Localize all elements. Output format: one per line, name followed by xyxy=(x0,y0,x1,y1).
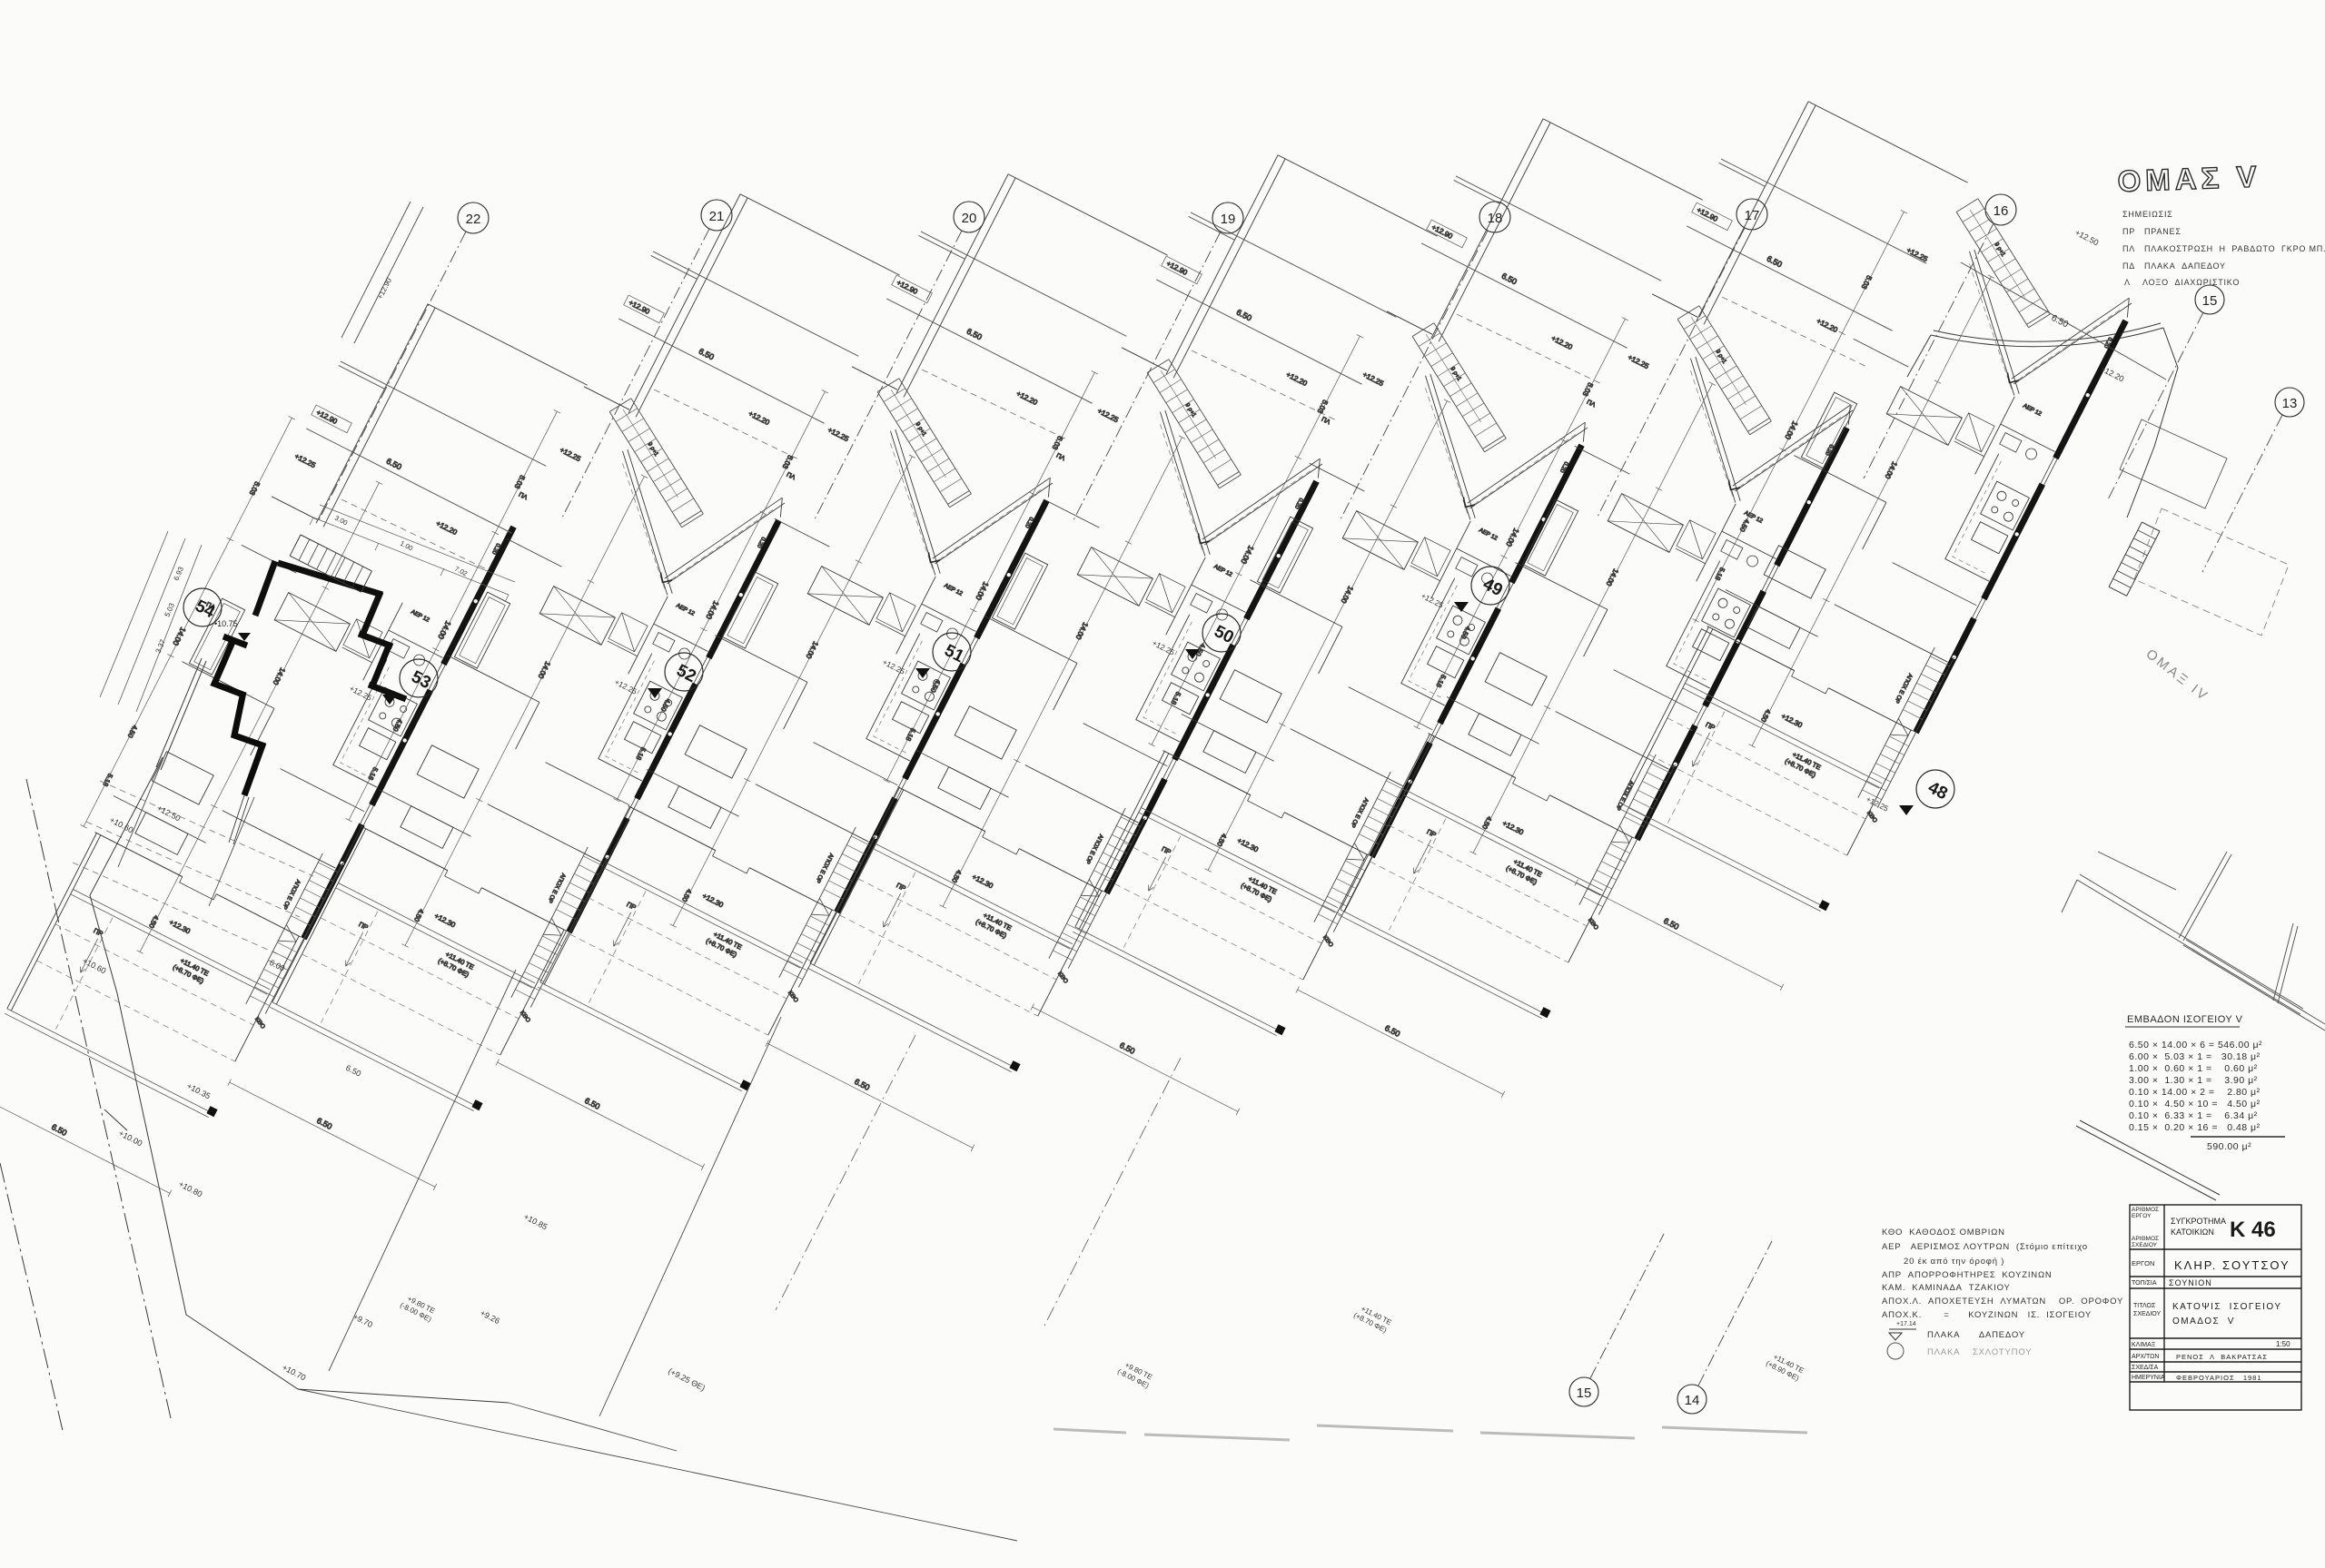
svg-text:19: 19 xyxy=(1221,212,1236,227)
svg-text:20 έκ από την όροφή ): 20 έκ από την όροφή ) xyxy=(1904,1257,2004,1267)
svg-text:ΦΕΒΡΟΥΑΡΙΟΣ 1981: ΦΕΒΡΟΥΑΡΙΟΣ 1981 xyxy=(2176,1374,2262,1382)
svg-text:0.10 × 4.50 × 10 = 4.50 μ²: 0.10 × 4.50 × 10 = 4.50 μ² xyxy=(2129,1099,2261,1109)
svg-text:ΑΡΧ/ΤΩΝ: ΑΡΧ/ΤΩΝ xyxy=(2132,1354,2159,1360)
svg-text:6.50 × 14.00 × 6 = 546.00 μ²: 6.50 × 14.00 × 6 = 546.00 μ² xyxy=(2129,1040,2262,1050)
svg-text:Λ ΛΟΞΟ ΔΙΑΧΩΡΙΣΤΙΚΟ: Λ ΛΟΞΟ ΔΙΑΧΩΡΙΣΤΙΚΟ xyxy=(2124,278,2240,287)
svg-text:ΑΡΙΘΜΟΣ: ΑΡΙΘΜΟΣ xyxy=(2132,1236,2159,1242)
svg-text:ΗΜΕΡΥΝΙΑ: ΗΜΕΡΥΝΙΑ xyxy=(2132,1375,2165,1381)
svg-text:ΑΠΟΧ.Κ. = ΚΟΥΖΙΝΩΝ: ΑΠΟΧ.Κ. = ΚΟΥΖΙΝΩΝ ΙΣ. ΙΣΟΓΕΙΟΥ xyxy=(1882,1310,2092,1320)
svg-text:•10.75: •10.75 xyxy=(214,619,238,628)
svg-text:+10.80: +10.80 xyxy=(177,1179,203,1199)
svg-text:0.10 × 14.00 × 2 = 2.80 μ²: 0.10 × 14.00 × 2 = 2.80 μ² xyxy=(2129,1087,2261,1098)
svg-text:ΚΘΟ ΚΑΘΟΔΟΣ ΟΜΒΡΙΩΝ: ΚΘΟ ΚΑΘΟΔΟΣ ΟΜΒΡΙΩΝ xyxy=(1882,1228,2005,1238)
svg-text:ΠΡ ΠΡΑΝΕΣ: ΠΡ ΠΡΑΝΕΣ xyxy=(2122,227,2182,236)
svg-text:6.50: 6.50 xyxy=(344,1063,362,1079)
svg-text:16: 16 xyxy=(1994,203,2009,219)
svg-text:15: 15 xyxy=(2202,293,2218,309)
svg-text:ΕΜΒΑΔΟΝ ΙΣΟΓΕΙΟΥ V: ΕΜΒΑΔΟΝ ΙΣΟΓΕΙΟΥ V xyxy=(2127,1014,2243,1025)
svg-text:ΣΧΕΔΙΟΥ: ΣΧΕΔΙΟΥ xyxy=(2132,1242,2158,1248)
svg-text:ΠΔ ΠΛΑΚΑ ΔΑΠΕΔΟΥ: ΠΔ ΠΛΑΚΑ ΔΑΠΕΔΟΥ xyxy=(2122,261,2226,271)
svg-text:14: 14 xyxy=(1685,1393,1700,1408)
svg-text:ΚΑΤΟΨΙΣ ΙΣΟΓΕΙΟΥ: ΚΑΤΟΨΙΣ ΙΣΟΓΕΙΟΥ xyxy=(2172,1302,2282,1312)
svg-text:3.00 × 1.30 × 1 = 3.90 μ²: 3.00 × 1.30 × 1 = 3.90 μ² xyxy=(2129,1075,2258,1086)
svg-text:ΣΗΜΕΙΩΣΙΣ: ΣΗΜΕΙΩΣΙΣ xyxy=(2122,210,2173,219)
svg-text:0.15 × 0.20 × 16 = 0.48 μ²: 0.15 × 0.20 × 16 = 0.48 μ² xyxy=(2129,1122,2261,1133)
svg-text:+17.14: +17.14 xyxy=(1896,1321,1916,1327)
svg-text:+9.26: +9.26 xyxy=(479,1308,501,1326)
svg-text:22: 22 xyxy=(466,212,481,227)
svg-text:ΕΡΓΟΥ: ΕΡΓΟΥ xyxy=(2132,1213,2152,1219)
svg-text:20: 20 xyxy=(962,211,977,226)
svg-text:3.37: 3.37 xyxy=(154,637,168,654)
svg-text:48: 48 xyxy=(1924,778,1950,804)
svg-text:ΤΟΠ/ΣΙΑ: ΤΟΠ/ΣΙΑ xyxy=(2132,1280,2157,1287)
svg-text:ΣΧΕΔΙΟΥ: ΣΧΕΔΙΟΥ xyxy=(2133,1311,2162,1317)
svg-text:13: 13 xyxy=(2282,396,2298,411)
svg-text:+12.25: +12.25 xyxy=(613,677,638,696)
svg-text:+12.25: +12.25 xyxy=(1420,591,1445,610)
svg-text:ΣΧΕΔ/ΣΑ: ΣΧΕΔ/ΣΑ xyxy=(2132,1365,2159,1371)
svg-text:+10.35: +10.35 xyxy=(185,1081,212,1101)
svg-text:(+9.25 ΘΕ): (+9.25 ΘΕ) xyxy=(667,1366,707,1393)
svg-text:ΑΕΡ ΑΕΡΙΣΜΟΣ ΛΟΥΤΡΩΝ (Στόμι: ΑΕΡ ΑΕΡΙΣΜΟΣ ΛΟΥΤΡΩΝ (Στόμιο επίτειχο xyxy=(1882,1242,2088,1252)
svg-text:ΣΥΓΚΡΟΤΗΜΑ: ΣΥΓΚΡΟΤΗΜΑ xyxy=(2171,1217,2226,1226)
svg-text:ΟΜΑΔΟΣ V: ΟΜΑΔΟΣ V xyxy=(2172,1317,2235,1326)
svg-text:ΑΠΡ ΑΠΟΡΡΟΦΗΤΗΡΕΣ ΚΟΥΖΙΝΩΝ: ΑΠΡ ΑΠΟΡΡΟΦΗΤΗΡΕΣ ΚΟΥΖΙΝΩΝ xyxy=(1882,1270,2053,1280)
svg-text:+10.70: +10.70 xyxy=(281,1363,307,1383)
svg-text:ΑΠΟΧ.Λ. ΑΠΟΧΕΤΕΥΣΗ ΛΥΜΑΤΩΝ: ΑΠΟΧ.Λ. ΑΠΟΧΕΤΕΥΣΗ ΛΥΜΑΤΩΝ ΟΡ. ΟΡΟΦΟΥ xyxy=(1882,1297,2123,1307)
svg-text:+12.50: +12.50 xyxy=(155,804,182,823)
svg-text:ΚΑΜ. ΚΑΜΙΝΑΔΑ ΤΖΑΚΙΟΥ: ΚΑΜ. ΚΑΜΙΝΑΔΑ ΤΖΑΚΙΟΥ xyxy=(1882,1283,2011,1293)
svg-text:+10.85: +10.85 xyxy=(522,1212,549,1232)
svg-text:ΤΙΤΛΟΣ: ΤΙΤΛΟΣ xyxy=(2133,1303,2156,1309)
svg-text:1.00 × 0.60 × 1 = 0.60 μ²: 1.00 × 0.60 × 1 = 0.60 μ² xyxy=(2129,1063,2258,1074)
svg-text:+12.50: +12.50 xyxy=(2073,228,2100,248)
svg-text:+10.60: +10.60 xyxy=(81,956,107,976)
svg-text:15: 15 xyxy=(1577,1386,1592,1401)
svg-text:ΠΛ ΠΛΑΚΟΣΤΡΩΣΗ Η ΡΑΒΔΩΤΟ: ΠΛ ΠΛΑΚΟΣΤΡΩΣΗ Η ΡΑΒΔΩΤΟ ΓΚΡΟ ΜΠ. xyxy=(2122,244,2325,253)
svg-text:1:50: 1:50 xyxy=(2276,1340,2290,1348)
svg-text:590.00 μ²: 590.00 μ² xyxy=(2207,1141,2251,1152)
svg-text:+12.25: +12.25 xyxy=(1151,638,1176,657)
svg-text:ΠΛΑΚΑ ΣΧΛΟΤΥΠΟΥ: ΠΛΑΚΑ ΣΧΛΟΤΥΠΟΥ xyxy=(1927,1347,2032,1357)
svg-text:17: 17 xyxy=(1745,208,1760,223)
svg-text:ΟΜΑΞ IV: ΟΜΑΞ IV xyxy=(2143,646,2212,705)
svg-text:ΟΜΑΣ V: ΟΜΑΣ V xyxy=(2117,160,2261,198)
svg-text:21: 21 xyxy=(709,209,725,224)
svg-text:ΣΟΥΝΙΟΝ: ΣΟΥΝΙΟΝ xyxy=(2169,1278,2212,1287)
svg-text:6.93: 6.93 xyxy=(173,565,186,581)
svg-text:5.03: 5.03 xyxy=(163,601,177,617)
svg-text:ΑΡΙΘΜΟΣ: ΑΡΙΘΜΟΣ xyxy=(2132,1207,2159,1213)
svg-text:6.00 × 5.03 × 1 = 30.18 μ²: 6.00 × 5.03 × 1 = 30.18 μ² xyxy=(2129,1051,2261,1062)
svg-text:ΠΛΑΚΑ ΔΑΠΕΔΟΥ: ΠΛΑΚΑ ΔΑΠΕΔΟΥ xyxy=(1927,1330,2025,1340)
svg-text:K 46: K 46 xyxy=(2230,1218,2276,1242)
svg-text:+12.20: +12.20 xyxy=(2099,364,2125,384)
svg-text:+12.25: +12.25 xyxy=(881,657,906,676)
svg-text:ΡΕΝΟΣ Λ ΒΑΚΡΑΤΣΑΣ: ΡΕΝΟΣ Λ ΒΑΚΡΑΤΣΑΣ xyxy=(2176,1353,2268,1361)
svg-text:+10.00: +10.00 xyxy=(117,1129,143,1149)
svg-text:+12.90: +12.90 xyxy=(376,276,393,301)
svg-text:ΚΛΗΡ. ΣΟΥΤΣΟΥ: ΚΛΗΡ. ΣΟΥΤΣΟΥ xyxy=(2174,1258,2290,1272)
svg-text:6.00: 6.00 xyxy=(268,958,286,973)
svg-text:ΚΛΙΜΑΞ: ΚΛΙΜΑΞ xyxy=(2132,1342,2156,1348)
svg-text:ΕΡΓΟΝ: ΕΡΓΟΝ xyxy=(2132,1259,2154,1267)
svg-text:0.10 × 6.33 × 1 = 6.34 μ²: 0.10 × 6.33 × 1 = 6.34 μ² xyxy=(2129,1110,2258,1121)
svg-text:ΚΑΤΟΙΚΙΩΝ: ΚΑΤΟΙΚΙΩΝ xyxy=(2171,1228,2214,1237)
svg-text:18: 18 xyxy=(1488,211,1503,226)
svg-text:6.50: 6.50 xyxy=(2050,313,2071,330)
